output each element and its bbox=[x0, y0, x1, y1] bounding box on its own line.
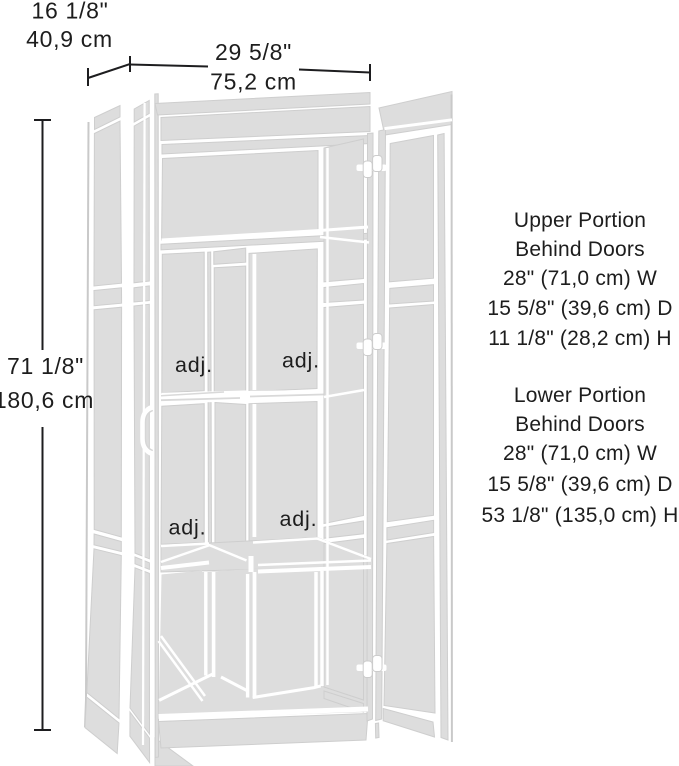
svg-text:11 1/8" (28,2 cm) H: 11 1/8" (28,2 cm) H bbox=[488, 327, 672, 350]
svg-text:adj.: adj. bbox=[282, 349, 320, 373]
svg-text:28" (71,0 cm) W: 28" (71,0 cm) W bbox=[503, 442, 657, 465]
svg-text:71 1/8": 71 1/8" bbox=[7, 353, 84, 379]
svg-text:15 5/8" (39,6 cm) D: 15 5/8" (39,6 cm) D bbox=[487, 297, 672, 320]
svg-text:15 5/8" (39,6 cm) D: 15 5/8" (39,6 cm) D bbox=[487, 473, 672, 496]
svg-text:adj.: adj. bbox=[175, 353, 213, 377]
svg-text:180,6 cm: 180,6 cm bbox=[0, 387, 94, 413]
svg-text:Lower Portion: Lower Portion bbox=[514, 384, 646, 407]
svg-text:adj.: adj. bbox=[280, 507, 318, 531]
svg-text:Upper Portion: Upper Portion bbox=[514, 209, 646, 232]
svg-text:75,2 cm: 75,2 cm bbox=[210, 69, 297, 95]
svg-text:adj.: adj. bbox=[169, 516, 207, 540]
svg-text:Behind Doors: Behind Doors bbox=[515, 413, 645, 436]
svg-text:28" (71,0 cm) W: 28" (71,0 cm) W bbox=[503, 267, 657, 290]
svg-text:16 1/8": 16 1/8" bbox=[31, 0, 108, 24]
svg-text:40,9 cm: 40,9 cm bbox=[26, 26, 113, 52]
svg-text:29 5/8": 29 5/8" bbox=[215, 39, 292, 65]
svg-text:Behind Doors: Behind Doors bbox=[515, 238, 645, 261]
svg-text:53 1/8" (135,0 cm) H: 53 1/8" (135,0 cm) H bbox=[481, 504, 678, 527]
